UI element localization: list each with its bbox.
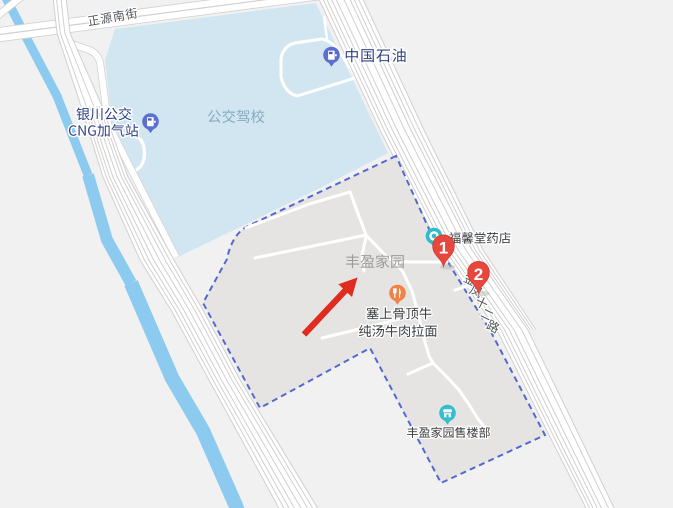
svg-text:2: 2	[474, 265, 483, 284]
svg-text:1: 1	[439, 239, 448, 258]
